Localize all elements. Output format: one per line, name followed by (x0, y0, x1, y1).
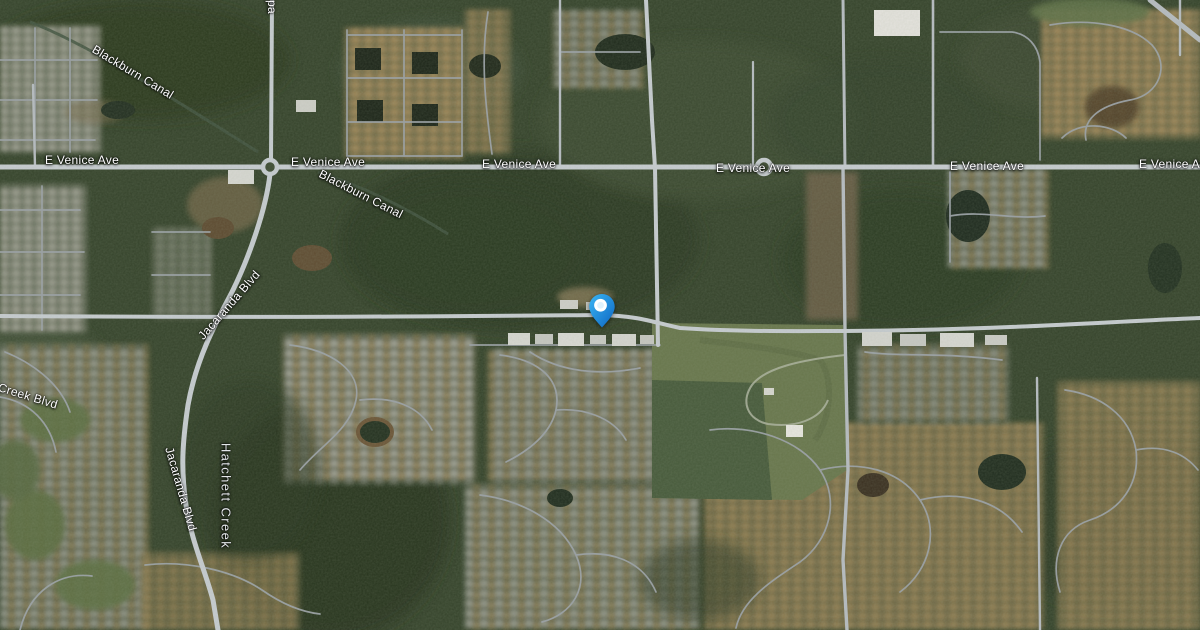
map-canvas[interactable]: E Venice Ave E Venice Ave E Venice Ave E… (0, 0, 1200, 630)
location-pin[interactable] (589, 294, 615, 328)
